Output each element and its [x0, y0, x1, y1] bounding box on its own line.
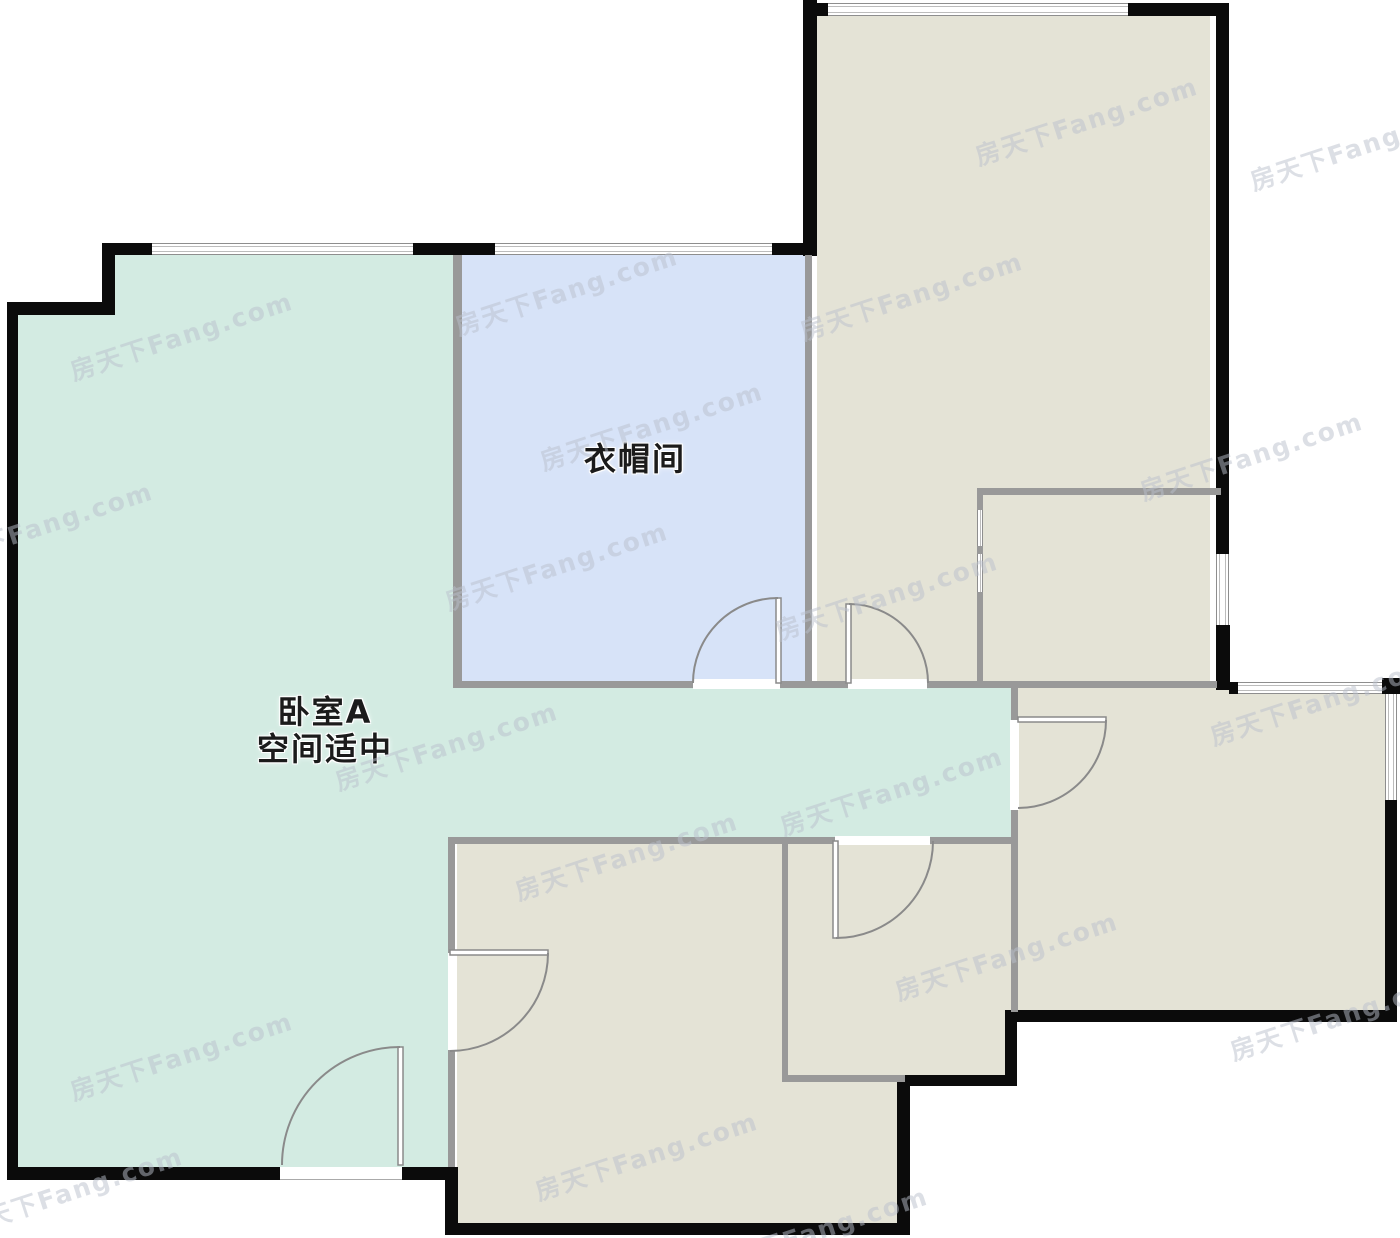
bedroom-a-note: 空间适中 — [175, 731, 475, 768]
door-bottom-middle-room — [450, 950, 548, 1051]
door-swings — [0, 0, 1400, 1238]
cloakroom-name: 衣帽间 — [485, 441, 785, 478]
floor-plan: 卧室A 空间适中 衣帽间 房天下Fang.com房天下Fang.com房天下Fa… — [0, 0, 1400, 1238]
door-cloakroom — [693, 598, 781, 683]
door-bath — [833, 841, 933, 938]
bedroom-a-name: 卧室A — [175, 694, 475, 731]
room-label-cloakroom: 衣帽间 — [485, 441, 785, 478]
door-top-right-room — [846, 604, 928, 683]
door-bedroom-a-entry — [282, 1047, 403, 1165]
door-bottom-right-room — [1018, 717, 1106, 808]
room-label-bedroom-a: 卧室A 空间适中 — [175, 694, 475, 768]
